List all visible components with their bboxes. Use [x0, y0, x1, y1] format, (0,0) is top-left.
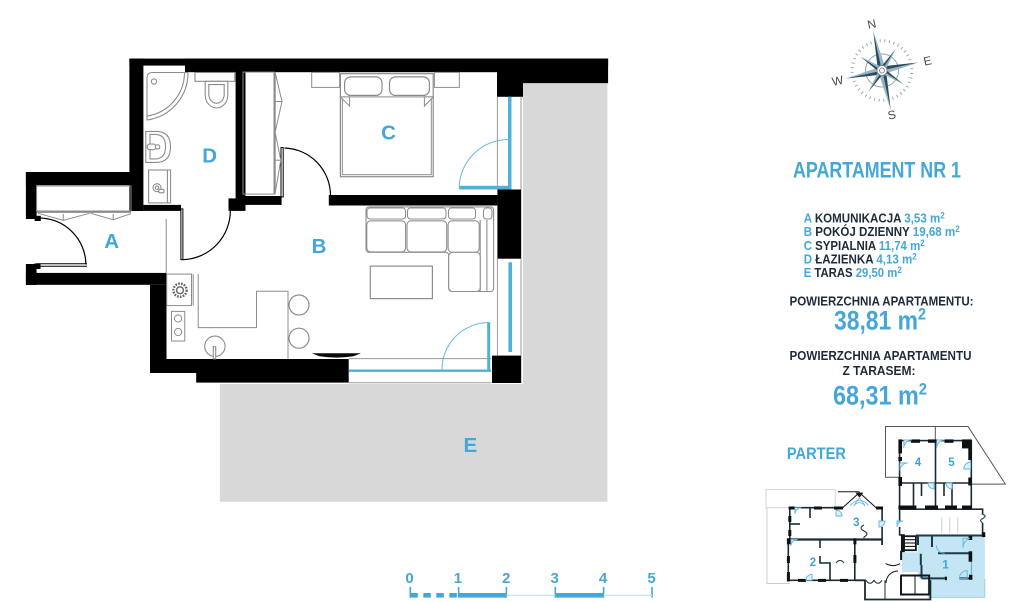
- svg-text:4: 4: [915, 457, 922, 469]
- svg-text:3: 3: [551, 570, 559, 587]
- svg-text:5: 5: [948, 457, 955, 469]
- svg-text:38,81 m2: 38,81 m2: [834, 304, 926, 335]
- svg-text:4: 4: [599, 570, 608, 587]
- svg-text:C: C: [381, 122, 396, 145]
- svg-text:0: 0: [405, 570, 413, 587]
- svg-text:1: 1: [454, 570, 462, 587]
- svg-text:APARTAMENT NR 1: APARTAMENT NR 1: [793, 158, 961, 183]
- svg-text:2: 2: [810, 557, 816, 569]
- svg-text:PARTER: PARTER: [787, 445, 846, 463]
- svg-text:POWIERZCHNIA APARTAMENTU: POWIERZCHNIA APARTAMENTU: [790, 348, 972, 363]
- svg-text:5: 5: [647, 570, 655, 587]
- svg-text:3: 3: [853, 517, 859, 529]
- svg-text:B: B: [312, 235, 327, 258]
- svg-text:2: 2: [502, 570, 510, 587]
- svg-text:68,31 m2: 68,31 m2: [833, 380, 927, 411]
- svg-text:1: 1: [942, 560, 949, 572]
- svg-text:E TARAS 29,50 m2: E TARAS 29,50 m2: [804, 265, 902, 280]
- svg-text:A: A: [104, 230, 119, 253]
- svg-text:B POKÓJ DZIENNY 19,68 m2: B POKÓJ DZIENNY 19,68 m2: [804, 224, 960, 239]
- svg-text:E: E: [463, 434, 477, 457]
- svg-text:D: D: [202, 144, 217, 167]
- svg-text:Z TARASEM:: Z TARASEM:: [843, 363, 916, 378]
